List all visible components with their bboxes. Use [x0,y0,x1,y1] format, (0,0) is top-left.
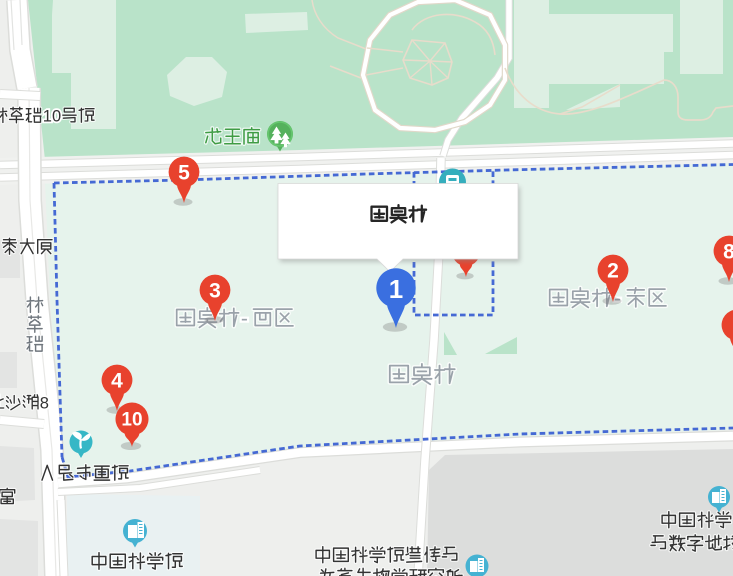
svg-text:1: 1 [389,274,403,304]
svg-text:8: 8 [40,395,49,413]
svg-text:4: 4 [111,370,123,393]
svg-text:5: 5 [178,162,190,185]
svg-text:10: 10 [121,410,142,431]
svg-text:10: 10 [43,108,61,126]
svg-text:2: 2 [607,260,619,283]
svg-text:8: 8 [723,241,733,264]
svg-text:3: 3 [209,280,221,303]
svg-text:-: - [241,308,248,331]
